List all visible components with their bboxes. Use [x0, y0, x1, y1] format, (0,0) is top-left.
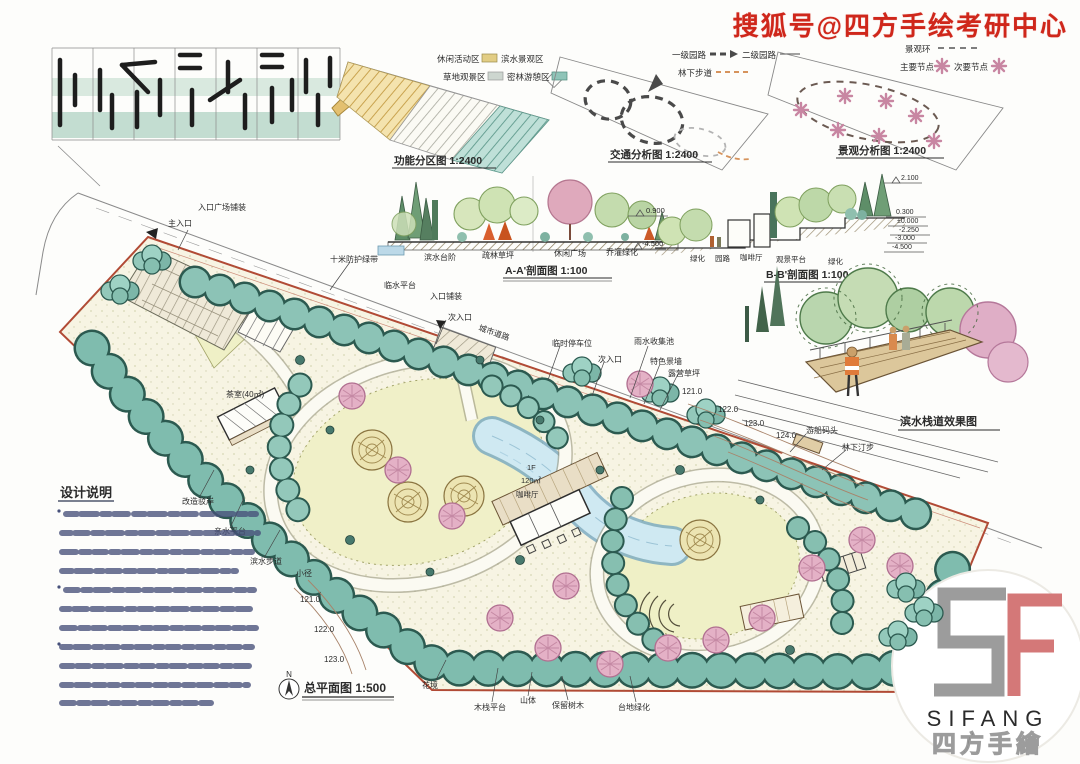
- elevation-value: -2.250: [899, 227, 919, 234]
- major-node-star: [872, 129, 886, 143]
- coffee-label-area: 120㎡: [521, 476, 542, 485]
- coffee-label-floor: 1F: [527, 463, 536, 472]
- plan-label-parking: 临时停车位: [552, 338, 592, 348]
- section-bb-labels: 绿化 园路 咖啡厅 观景平台 绿化: [690, 252, 843, 266]
- section-label: 滨水台阶: [424, 252, 456, 262]
- plan-label-entry-paving: 入口铺装: [430, 291, 462, 301]
- section-bb-elevations: 2.100 0.300 ±0.000 -2.250 -3.000 -4.500: [884, 175, 930, 252]
- section-bb-planting: [658, 174, 891, 247]
- legend-chip: [482, 54, 497, 62]
- elevation-value: -4.500: [892, 244, 912, 251]
- plan-label-flower-border: 花境: [422, 680, 438, 690]
- tree-cluster: [563, 357, 601, 386]
- section-label: 疏林草坪: [482, 250, 514, 260]
- logo-latin-text: SIFANG: [927, 706, 1050, 731]
- title-art: [52, 48, 350, 186]
- contour-value: 123.0: [324, 655, 345, 664]
- watermark-text: 搜狐号@四方手绘考研中心: [733, 6, 1068, 43]
- north-letter: N: [286, 670, 292, 679]
- major-node-star: [838, 89, 852, 103]
- north-compass: N: [279, 670, 299, 699]
- section-label: 园路: [715, 253, 730, 263]
- perspective-sketch: 滨水栈道效果图: [735, 264, 1028, 478]
- section-label: 观景平台: [776, 254, 806, 264]
- plan-label-main-entry: 主入口: [168, 218, 192, 228]
- feature-tree: [388, 482, 428, 522]
- function-diagram: 功能分区图 1:2400 休闲活动区 滨水景观区 草地观景区 密林游憩区: [337, 54, 567, 173]
- section-label: 乔灌绿化: [606, 247, 638, 257]
- plan-label-kept-trees: 保留树木: [552, 700, 584, 710]
- plan-label-side-entry-1: 次入口: [448, 312, 472, 322]
- plan-label-waterfront-walk: 滨水步道: [250, 556, 282, 566]
- contour-value: 121.0: [682, 387, 703, 396]
- node-star: [927, 134, 941, 148]
- plan-caption: 总平面图 1:500: [304, 680, 386, 695]
- legend-label: 林下步道: [678, 68, 713, 78]
- plan-label-wood-deck: 木栈平台: [474, 702, 506, 712]
- plan-label-trail: 小径: [296, 568, 312, 578]
- contour-value: 121.0: [300, 595, 321, 604]
- elevation-value: 0.300: [896, 209, 914, 216]
- node-star: [794, 103, 808, 117]
- function-legend: 休闲活动区 滨水景观区 草地观景区 密林游憩区: [437, 54, 567, 82]
- legend-label: 密林游憩区: [507, 72, 550, 82]
- node-star: [909, 109, 923, 123]
- traffic-diagram: 交通分析图 1:2400 一级园路 二级园路 林下步道: [551, 50, 800, 170]
- legend-chip: [488, 72, 503, 80]
- section-label: 绿化: [828, 256, 843, 266]
- landscape-legend: 景观环 主要节点 次要节点: [900, 44, 1006, 73]
- section-aa: 滨水台阶 疏林草坪 休闲广场 乔灌绿化 A-A'剖面图 1:100 0.900 …: [378, 176, 678, 281]
- legend-label: 休闲活动区: [437, 54, 480, 64]
- plan-label-city-road: 城市道路: [477, 322, 511, 342]
- legend-label: 二级园路: [742, 50, 777, 60]
- feature-tree: [680, 520, 720, 560]
- plan-label-side-entry-2: 次入口: [598, 354, 622, 364]
- section-aa-planting: [392, 180, 670, 242]
- sheet-artwork: 功能分区图 1:2400 休闲活动区 滨水景观区 草地观景区 密林游憩区 交通分…: [0, 0, 1080, 764]
- elevation-value: -3.000: [895, 235, 915, 242]
- landscape-diagram-caption: 景观分析图 1:2400: [837, 144, 926, 157]
- legend-label: 主要节点: [900, 62, 935, 72]
- design-sheet: 功能分区图 1:2400 休闲活动区 滨水景观区 草地观景区 密林游憩区 交通分…: [0, 0, 1080, 764]
- elevation-value: ±0.000: [897, 218, 918, 225]
- notes-title: 设计说明: [60, 485, 112, 500]
- section-aa-caption: A-A'剖面图 1:100: [505, 264, 588, 277]
- legend-star-minor: [992, 59, 1006, 73]
- plan-label-tea-house: 茶室(40㎡): [226, 389, 265, 399]
- plan-label-entry-plaza: 入口广场铺装: [198, 202, 246, 212]
- plan-label-water-platform: 临水平台: [384, 280, 416, 290]
- contour-value: 124.0: [776, 431, 797, 440]
- plan-label-camp-lawn: 露营草坪: [668, 368, 700, 378]
- traffic-arrow: [648, 74, 663, 92]
- section-label: 休闲广场: [554, 248, 586, 258]
- node-star: [831, 123, 845, 137]
- legend-label: 滨水景观区: [501, 54, 544, 64]
- traffic-diagram-caption: 交通分析图 1:2400: [610, 148, 698, 161]
- legend-label: 次要节点: [954, 62, 989, 72]
- legend-star-major: [935, 59, 949, 73]
- elevation-value: -4.500: [642, 239, 663, 248]
- section-label: 绿化: [690, 253, 705, 263]
- plan-label-terrace-green: 台地绿化: [618, 702, 650, 712]
- node-star: [879, 94, 893, 108]
- logo-cn-text: 四方手繪: [932, 730, 1044, 758]
- plan-label-buffer-belt: 十米防护绿带: [330, 254, 378, 264]
- section-bb: 绿化 园路 咖啡厅 观景平台 绿化 B-B'剖面图 1:100 2.100 0.…: [655, 174, 930, 282]
- plan-label-revet: 改造驳岸: [182, 496, 214, 506]
- plan-label-hill: 山体: [520, 695, 536, 705]
- legend-label: 景观环: [905, 44, 931, 54]
- legend-label: 一级园路: [672, 50, 707, 60]
- contour-value: 122.0: [718, 405, 739, 414]
- traffic-legend: 一级园路 二级园路 林下步道: [672, 50, 800, 78]
- function-diagram-caption: 功能分区图 1:2400: [394, 154, 482, 167]
- legend-label: 草地观景区: [443, 72, 486, 82]
- sifang-logo: SIFANG 四方手繪: [879, 570, 1080, 762]
- coffee-label-name: 咖啡厅: [516, 489, 539, 499]
- perspective-caption: 滨水栈道效果图: [900, 414, 977, 428]
- landscape-diagram: 景观分析图 1:2400 景观环 主要节点 次要节点: [768, 44, 1006, 170]
- contour-value: 122.0: [314, 625, 335, 634]
- notes-handwriting: [57, 509, 258, 703]
- elevation-value: 0.900: [646, 206, 665, 215]
- plan-label-feature-wall: 特色景墙: [650, 356, 682, 366]
- elevation-value: 2.100: [901, 175, 919, 182]
- plan-label-rain-pool: 雨水收集池: [634, 336, 674, 346]
- section-label: 咖啡厅: [740, 252, 763, 262]
